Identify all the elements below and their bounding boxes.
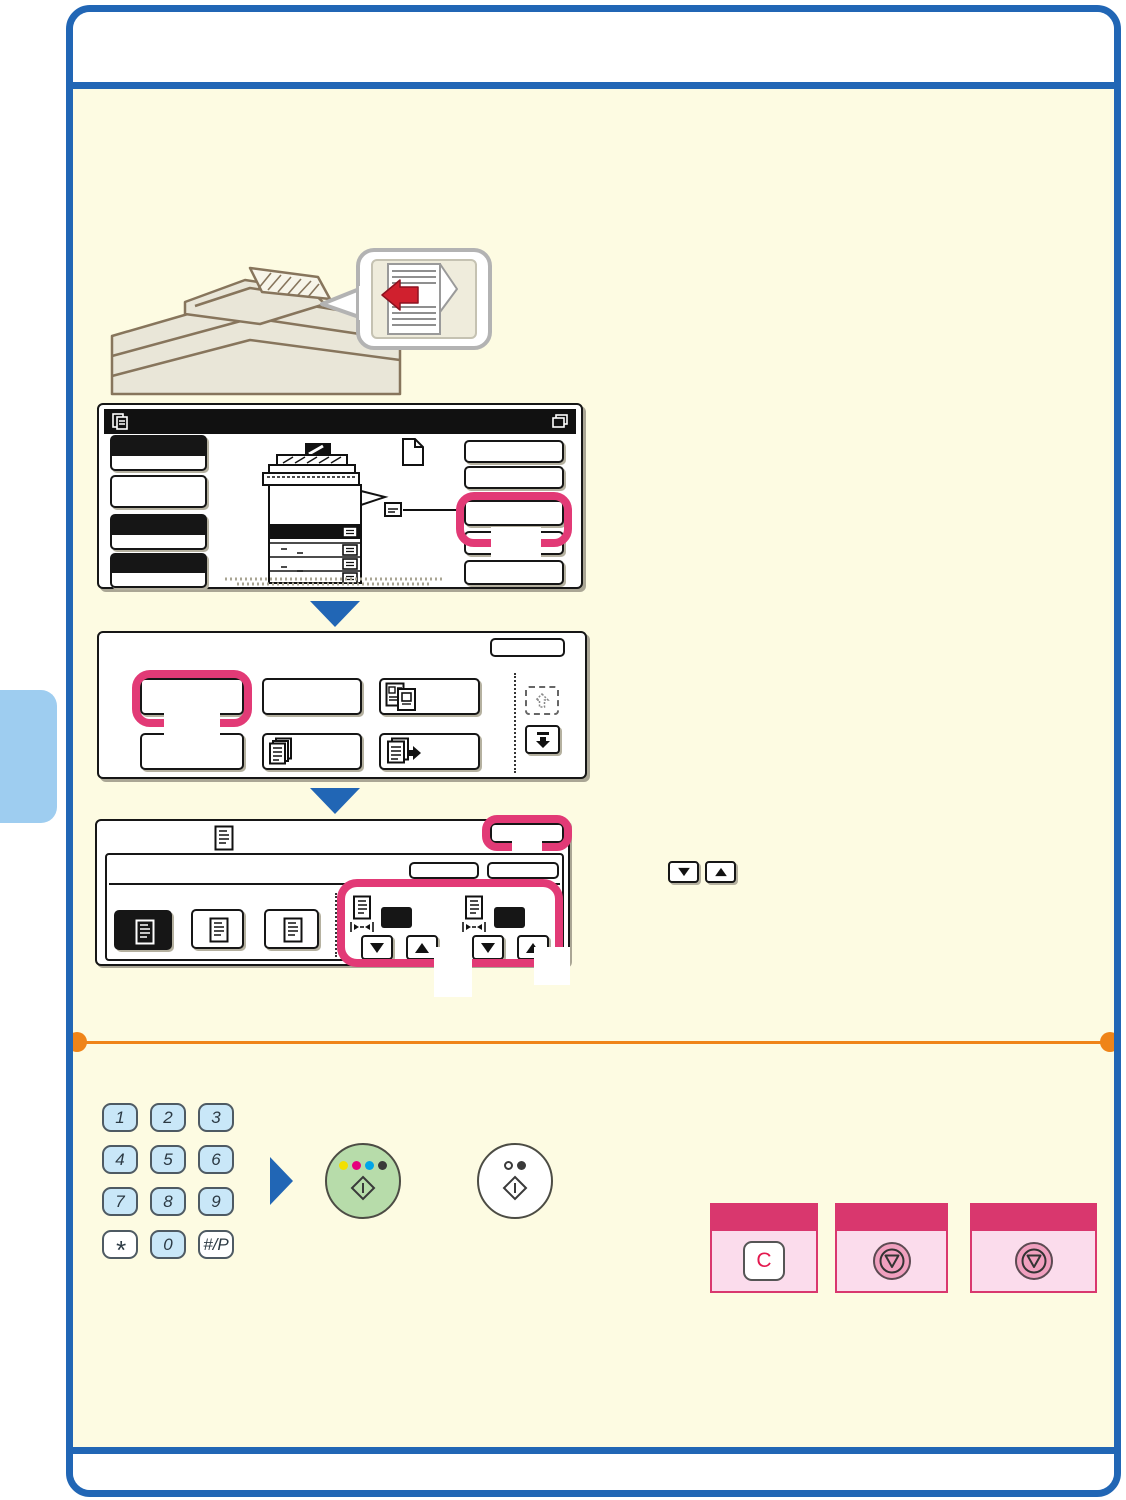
page-footer <box>73 1454 1114 1490</box>
keypad-key-asterisk: * <box>102 1230 138 1259</box>
screen1-right-button-1 <box>464 440 564 463</box>
divider-dot-right <box>1100 1032 1120 1052</box>
screen2-menu-button-3 <box>379 678 480 715</box>
id-card-copy-icon <box>385 682 419 712</box>
clear-key: C <box>743 1241 785 1281</box>
keypad-key-7: 7 <box>102 1187 138 1216</box>
section-divider <box>73 1041 1114 1044</box>
down-arrow-icon <box>677 867 691 877</box>
scroll-down-button <box>525 725 560 754</box>
callout-stem-2 <box>534 947 570 985</box>
page-frame: 1 2 3 4 5 6 7 8 9 * 0 #/P <box>66 5 1121 1497</box>
keypad-key-2: 2 <box>150 1103 186 1132</box>
job-status-icon <box>552 414 568 429</box>
file-pages-icon <box>385 737 421 767</box>
color-start-icon <box>350 1175 376 1201</box>
screen1-right-button-5 <box>464 560 564 585</box>
screen1-left-button-2 <box>110 475 207 508</box>
keypad-key-8: 8 <box>150 1187 186 1216</box>
color-start-button <box>325 1143 401 1219</box>
original-size-icon <box>214 825 234 851</box>
stop-key-card-2 <box>970 1203 1097 1293</box>
divider-dot-left <box>67 1032 87 1052</box>
screen2-separator <box>514 673 516 773</box>
original-doc-icon <box>283 917 303 943</box>
color-start-dots <box>339 1161 387 1170</box>
bw-start-dots <box>504 1161 526 1170</box>
copy-mode-icon <box>112 413 128 430</box>
chapter-side-tab <box>0 690 57 823</box>
header-divider <box>73 82 1114 89</box>
scroll-up-icon <box>533 692 551 710</box>
callout-stem-1 <box>434 947 472 997</box>
stop-key-card-header <box>837 1205 946 1231</box>
up-arrow-icon <box>714 867 728 877</box>
keypad-key-3: 3 <box>198 1103 234 1132</box>
copy-base-screen <box>97 403 583 589</box>
screen2-menu-button-4 <box>140 733 244 770</box>
screen3-auto-button <box>409 862 479 879</box>
step-down-arrow-1 <box>310 601 360 627</box>
special-modes-screen <box>97 631 587 779</box>
copy-screen-titlebar <box>104 409 576 434</box>
inline-up-arrow-button <box>705 861 736 883</box>
page-icon <box>403 439 423 465</box>
keypad-key-9: 9 <box>198 1187 234 1216</box>
screen2-menu-button-5 <box>262 733 362 770</box>
original-doc-icon <box>135 919 155 945</box>
machine-tray-illustration <box>217 433 457 588</box>
keypad-key-0: 0 <box>150 1230 186 1259</box>
clear-key-card-header <box>712 1205 816 1231</box>
screen1-right-button-2 <box>464 466 564 489</box>
callout-gap <box>512 841 542 851</box>
stop-icon <box>1014 1241 1054 1281</box>
sort-copies-icon <box>268 737 302 767</box>
keypad-key-6: 6 <box>198 1145 234 1174</box>
screen1-left-button-3 <box>110 514 207 550</box>
paper-tray-icons <box>343 527 357 583</box>
scroll-up-button <box>525 686 559 715</box>
screen2-menu-button-6 <box>379 733 480 770</box>
bw-start-button <box>477 1143 553 1219</box>
keypad-key-4: 4 <box>102 1145 138 1174</box>
page-content: 1 2 3 4 5 6 7 8 9 * 0 #/P <box>73 89 1114 1447</box>
screen3-size-input-button <box>487 862 559 879</box>
keypad-key-5: 5 <box>150 1145 186 1174</box>
size-option-button-selected <box>114 910 172 950</box>
keypad-key-1: 1 <box>102 1103 138 1132</box>
keypad-key-pound: #/P <box>198 1230 234 1259</box>
copier-feeder-illustration <box>100 244 500 396</box>
inline-down-arrow-button <box>668 861 699 883</box>
screen1-left-button-4 <box>110 553 207 588</box>
stop-key-card-header <box>972 1205 1095 1231</box>
clear-key-card: C <box>710 1203 818 1293</box>
screen2-ok-button <box>490 638 565 657</box>
step-down-arrow-2 <box>310 788 360 814</box>
size-option-button-2 <box>191 909 244 949</box>
callout-gap <box>491 527 541 557</box>
original-doc-icon <box>209 917 229 943</box>
screen1-left-button-1 <box>110 435 207 471</box>
original-size-screen <box>95 819 570 966</box>
size-option-button-3 <box>264 909 319 949</box>
then-arrow <box>270 1157 293 1205</box>
stop-key-card-1 <box>835 1203 948 1293</box>
numeric-keypad: 1 2 3 4 5 6 7 8 9 * 0 #/P <box>102 1103 236 1259</box>
scroll-down-icon <box>534 731 552 749</box>
manual-page: 1 2 3 4 5 6 7 8 9 * 0 #/P <box>0 0 1126 1500</box>
page-header <box>73 12 1114 82</box>
stop-icon <box>872 1241 912 1281</box>
bw-start-icon <box>502 1175 528 1201</box>
footer-divider <box>73 1447 1114 1454</box>
screen2-menu-button-2 <box>262 678 362 715</box>
callout-gap <box>164 711 220 737</box>
